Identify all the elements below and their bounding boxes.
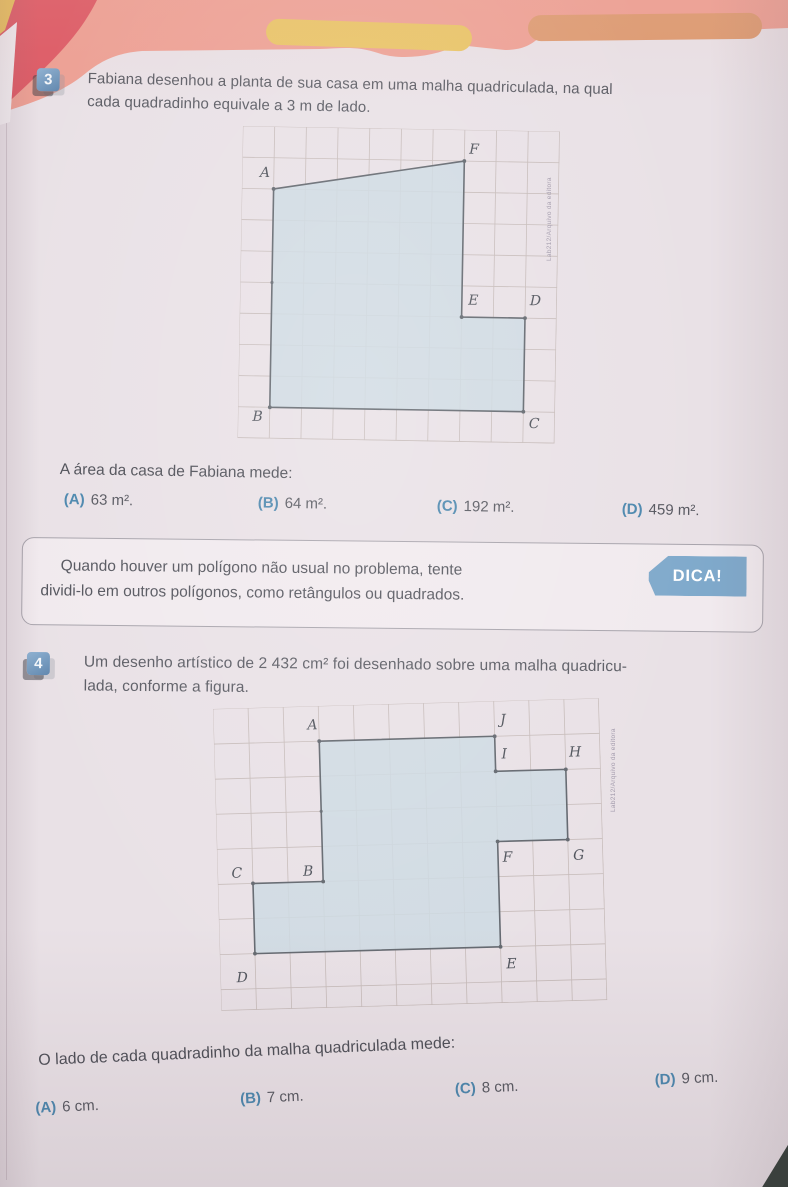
svg-text:C: C	[529, 416, 540, 432]
figure-desenho-artistico: AJIHGFEDCB	[213, 698, 607, 1011]
exercise-3-number-badge: 3	[36, 68, 59, 91]
svg-text:A: A	[258, 165, 270, 181]
svg-text:E: E	[505, 956, 517, 972]
svg-text:C: C	[231, 865, 242, 881]
exercise-4-options: (A)6 cm. (B)7 cm. (C)8 cm. (D)9 cm.	[30, 1067, 760, 1122]
photo-corner	[758, 1133, 788, 1187]
page-crease	[6, 100, 7, 1180]
svg-text:F: F	[501, 849, 513, 865]
tip-box: Quando houver um polígono não usual no p…	[21, 537, 764, 633]
option-4b-value: 7 cm.	[267, 1088, 304, 1107]
option-3d: (D)459 m².	[622, 501, 700, 519]
figure1-credit: Lab212/Arquivo da editora	[546, 146, 553, 261]
option-4c-value: 8 cm.	[481, 1078, 518, 1097]
option-3d-value: 459 m².	[648, 501, 699, 519]
exercise-4-question: O lado de cada quadradinho da malha quad…	[38, 1035, 456, 1070]
tip-badge: DICA!	[648, 556, 746, 597]
option-3a-letter: (A)	[64, 491, 85, 508]
svg-text:J: J	[497, 712, 507, 728]
option-3d-letter: (D)	[622, 501, 643, 518]
figure2-credit: Lab212/Arquivo da editora	[610, 712, 617, 812]
option-3b-letter: (B)	[258, 494, 279, 511]
option-4a: (A)6 cm.	[35, 1097, 99, 1117]
exercise-4-number: 4	[34, 655, 42, 672]
option-4c-letter: (C)	[455, 1080, 477, 1098]
svg-text:B: B	[251, 409, 263, 425]
svg-text:I: I	[500, 746, 507, 762]
option-3a: (A)63 m².	[64, 491, 134, 509]
option-4d: (D)9 cm.	[654, 1069, 718, 1089]
textbook-page: 3 Fabiana desenhou a planta de sua casa …	[0, 0, 788, 1187]
option-4a-value: 6 cm.	[62, 1097, 99, 1116]
exercise-3-statement: Fabiana desenhou a planta de sua casa em…	[87, 67, 613, 124]
exercise-3-question: A área da casa de Fabiana mede:	[60, 461, 293, 483]
exercise-4-statement: Um desenho artístico de 2 432 cm² foi de…	[84, 650, 628, 703]
svg-text:E: E	[467, 293, 479, 309]
exercise-3-number: 3	[44, 71, 53, 88]
option-3c-value: 192 m².	[463, 498, 514, 516]
svg-text:B: B	[302, 863, 314, 879]
svg-text:G: G	[573, 847, 585, 863]
svg-text:A: A	[305, 717, 318, 733]
option-4d-value: 9 cm.	[681, 1069, 718, 1088]
option-3a-value: 63 m².	[91, 492, 134, 510]
option-3c: (C)192 m².	[437, 498, 515, 516]
option-3b-value: 64 m².	[284, 495, 327, 513]
option-4d-letter: (D)	[654, 1071, 676, 1089]
planta-da-casa-grid: AFEDCB	[238, 126, 560, 443]
exercise-3-options: (A)63 m². (B)64 m². (C)192 m². (D)459 m²…	[60, 491, 770, 525]
svg-text:F: F	[468, 142, 480, 158]
option-3b: (B)64 m².	[258, 494, 328, 512]
option-3c-letter: (C)	[437, 498, 458, 515]
option-4c: (C)8 cm.	[455, 1078, 519, 1098]
svg-text:D: D	[529, 293, 542, 309]
option-4a-letter: (A)	[35, 1099, 57, 1117]
desenho-artistico-grid: AJIHGFEDCB	[213, 698, 607, 1011]
figure-planta-da-casa: AFEDCB	[238, 126, 560, 443]
svg-text:H: H	[568, 744, 582, 760]
svg-text:D: D	[235, 970, 248, 986]
exercise-4-number-badge: 4	[27, 652, 50, 675]
option-4b-letter: (B)	[240, 1090, 262, 1108]
option-4b: (B)7 cm.	[240, 1088, 304, 1108]
orange-bar	[528, 13, 762, 41]
